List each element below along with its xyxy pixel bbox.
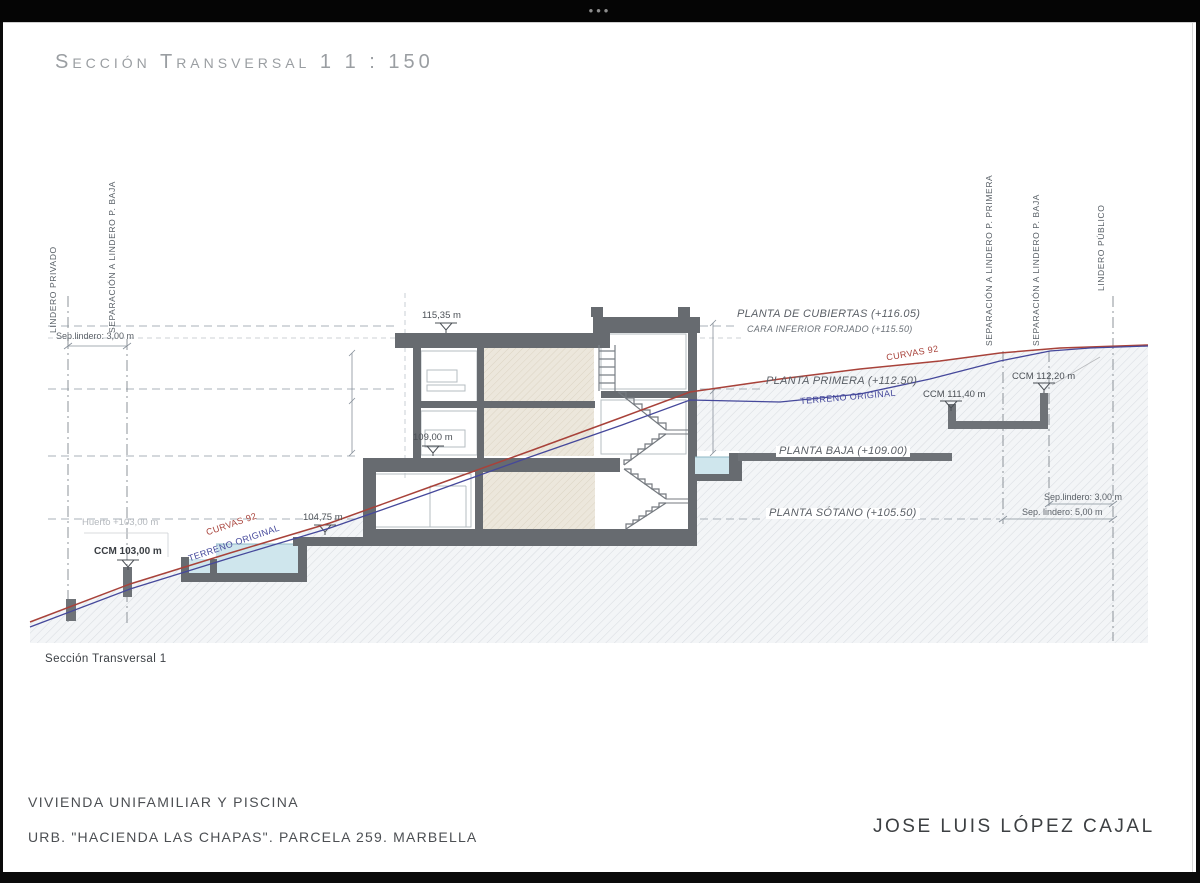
boundary-label-sep-lindero-primera: SEPARACIÓN A LINDERO P. PRIMERA [984, 175, 994, 346]
dim-sep-lindero-3m: Sep.lindero: 3,00 m [1044, 492, 1122, 502]
drawing-title: Sección Transversal 1 1 : 150 [55, 51, 434, 74]
viewer-screen: ••• [0, 0, 1200, 883]
elevation-roof: 115,35 m [422, 310, 461, 321]
project-title: VIVIENDA UNIFAMILIAR Y PISCINA [28, 794, 299, 810]
section-drawing [3, 22, 1196, 872]
elevation-huerto: Huerto +103,00 m [82, 517, 158, 528]
dim-sep-lindero-5m: Sep. lindero: 5,00 m [1022, 507, 1103, 517]
boundary-label-sep-lindero-baja-left: SEPARACIÓN A LINDERO P. BAJA [107, 181, 117, 333]
level-label-primera: PLANTA PRIMERA (+112.50) [766, 376, 917, 387]
project-address: URB. "HACIENDA LAS CHAPAS". PARCELA 259.… [28, 829, 477, 845]
window-topbar: ••• [0, 0, 1200, 22]
drawing-caption: Sección Transversal 1 [45, 653, 167, 665]
level-label-cubiertas: PLANTA DE CUBIERTAS (+116.05) [737, 309, 920, 320]
elevation-ccm-112: CCM 112,20 m [1012, 371, 1075, 382]
architect-name: JOSE LUIS LÓPEZ CAJAL [873, 816, 1155, 838]
dim-sep-lindero-left: Sep.lindero: 3,00 m [56, 331, 134, 341]
level-label-baja: PLANTA BAJA (+109.00) [776, 446, 910, 457]
boundary-label-sep-lindero-baja-right: SEPARACIÓN A LINDERO P. BAJA [1031, 194, 1041, 346]
drawing-canvas: Sección Transversal 1 1 : 150 LINDERO PR… [3, 22, 1196, 872]
elevation-ccm-103: CCM 103,00 m [94, 546, 162, 557]
elevation-pool-deck: 104,75 m [303, 512, 343, 523]
level-label-sotano: PLANTA SÓTANO (+105.50) [766, 508, 920, 519]
boundary-label-lindero-publico: LINDERO PÚBLICO [1096, 205, 1106, 291]
menu-dots-button[interactable]: ••• [570, 3, 630, 18]
boundary-label-lindero-privado: LINDERO PRIVADO [48, 246, 58, 333]
elevation-ccm-111: CCM 111,40 m [923, 389, 985, 400]
pool-upper [693, 453, 742, 481]
level-label-forjado: CARA INFERIOR FORJADO (+115.50) [747, 324, 913, 335]
elevation-ground-floor: 109,00 m [413, 432, 453, 443]
drawing-sheet: Sección Transversal 1 1 : 150 LINDERO PR… [3, 22, 1196, 872]
